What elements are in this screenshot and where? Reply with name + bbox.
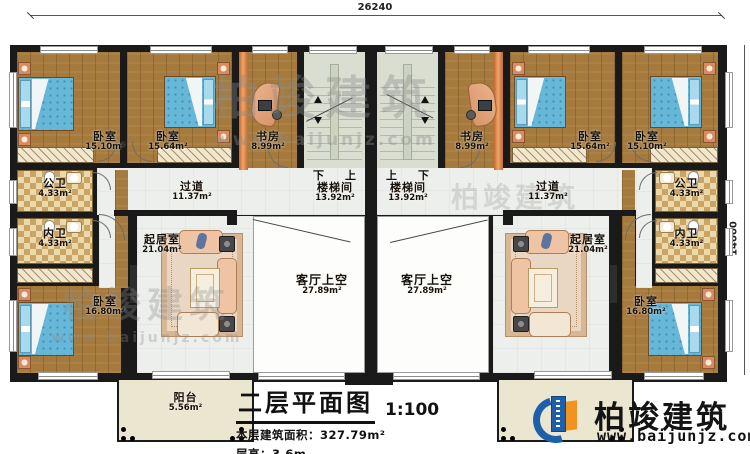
floorplan-canvas: 26240 14000 <box>0 0 750 454</box>
window <box>9 228 17 256</box>
balcony-door-right <box>534 371 612 379</box>
window <box>528 46 590 54</box>
window <box>252 46 288 54</box>
nightstand <box>703 130 716 143</box>
coffee-table <box>190 268 220 308</box>
sofa <box>217 258 237 314</box>
floor-height-line: 层高：3.6m <box>236 446 536 454</box>
label-private-bath-right: 内卫4.33m² <box>655 228 718 250</box>
wall-stub-left <box>227 210 237 225</box>
label-void-right: 客厅上空27.89m² <box>377 274 477 297</box>
floor-area-line: 本层建筑面积：327.79m² <box>236 427 536 443</box>
dimension-line-top <box>30 15 722 16</box>
label-bedroom-br: 卧室16.80m² <box>594 296 698 318</box>
nightstand <box>702 288 715 301</box>
window <box>725 180 733 204</box>
label-study-left: 书房8.99m² <box>233 131 303 153</box>
computer-monitor <box>258 100 272 111</box>
brand-website: www.baijunjz.com <box>597 427 750 445</box>
label-stairwell-right: 楼梯间13.92m² <box>367 182 449 204</box>
label-public-bath-right: 公卫4.33m² <box>655 178 718 200</box>
window <box>725 228 733 256</box>
nightstand <box>18 288 31 301</box>
dimension-top-value: 26240 <box>340 2 410 13</box>
label-living-left: 起居室21.04m² <box>126 234 198 256</box>
nightstand <box>217 62 230 75</box>
label-bedroom-tl2: 卧室15.64m² <box>118 131 218 153</box>
bed-top-left2 <box>164 76 216 128</box>
window <box>9 72 17 128</box>
coffee-table <box>528 268 558 308</box>
label-study-right: 书房8.99m² <box>437 131 507 153</box>
label-stairwell-left: 楼梯间13.92m² <box>294 182 376 204</box>
label-void-left: 客厅上空27.89m² <box>272 274 372 297</box>
window <box>9 300 17 352</box>
dimension-line-right <box>744 45 745 375</box>
window <box>725 300 733 352</box>
logo-building-icon <box>566 400 577 431</box>
label-bedroom-bl: 卧室16.80m² <box>53 296 157 318</box>
stair-arrow-up <box>421 96 429 103</box>
window <box>40 46 98 54</box>
window <box>309 46 357 54</box>
title-block: 二层平面图 1:100 本层建筑面积：327.79m² 层高：3.6m <box>236 383 536 454</box>
desk-chair <box>466 110 476 120</box>
nightstand <box>217 130 230 143</box>
window <box>454 46 490 54</box>
room-stairwell-right <box>377 52 438 170</box>
window <box>725 72 733 128</box>
nightstand <box>703 62 716 75</box>
nightstand <box>18 62 31 75</box>
wall-stub-right <box>503 210 513 225</box>
wall-corridor-left <box>114 210 237 216</box>
nightstand <box>702 356 715 369</box>
side-table <box>219 236 235 252</box>
closet-right-bath <box>655 268 718 283</box>
window <box>258 372 345 380</box>
stair-arrow-down <box>421 117 429 124</box>
window <box>644 46 702 54</box>
label-balcony-left: 阳台5.56m² <box>117 392 254 414</box>
stair-stringer <box>403 64 412 160</box>
logo-building-icon <box>551 396 566 432</box>
stair-arrow-up <box>314 96 322 103</box>
side-table <box>513 316 529 332</box>
label-bedroom-tr: 卧室15.10m² <box>597 131 697 153</box>
window <box>150 46 212 54</box>
stair-stringer <box>330 64 339 160</box>
plan-scale: 1:100 <box>385 400 439 424</box>
label-private-bath-left: 内卫4.33m² <box>17 228 93 250</box>
window <box>393 372 480 380</box>
desk-chair <box>272 110 282 120</box>
nightstand <box>512 130 525 143</box>
bed-top-right <box>650 76 702 128</box>
closet-left-bath <box>17 268 93 283</box>
balcony-door-left <box>152 371 230 379</box>
label-public-bath-left: 公卫4.33m² <box>17 178 93 200</box>
stair-arrow-down <box>314 117 322 124</box>
bed-top-right2 <box>514 76 566 128</box>
label-living-right: 起居室21.04m² <box>552 234 624 256</box>
room-stairwell-left <box>304 52 365 170</box>
computer-monitor <box>478 100 492 111</box>
window <box>644 372 704 380</box>
label-corridor-left: 过道11.37m² <box>132 181 252 203</box>
nightstand <box>18 133 31 146</box>
nightstand <box>512 62 525 75</box>
sofa <box>177 312 219 337</box>
plan-title: 二层平面图 <box>236 383 375 424</box>
label-corridor-right: 过道11.37m² <box>488 181 608 203</box>
window <box>9 180 17 204</box>
side-table <box>513 236 529 252</box>
side-table <box>219 316 235 332</box>
nightstand <box>18 356 31 369</box>
window <box>385 46 433 54</box>
window <box>38 372 98 380</box>
bed-top-left <box>18 77 74 131</box>
wall-corridor-right <box>503 210 636 216</box>
sofa <box>529 312 571 337</box>
